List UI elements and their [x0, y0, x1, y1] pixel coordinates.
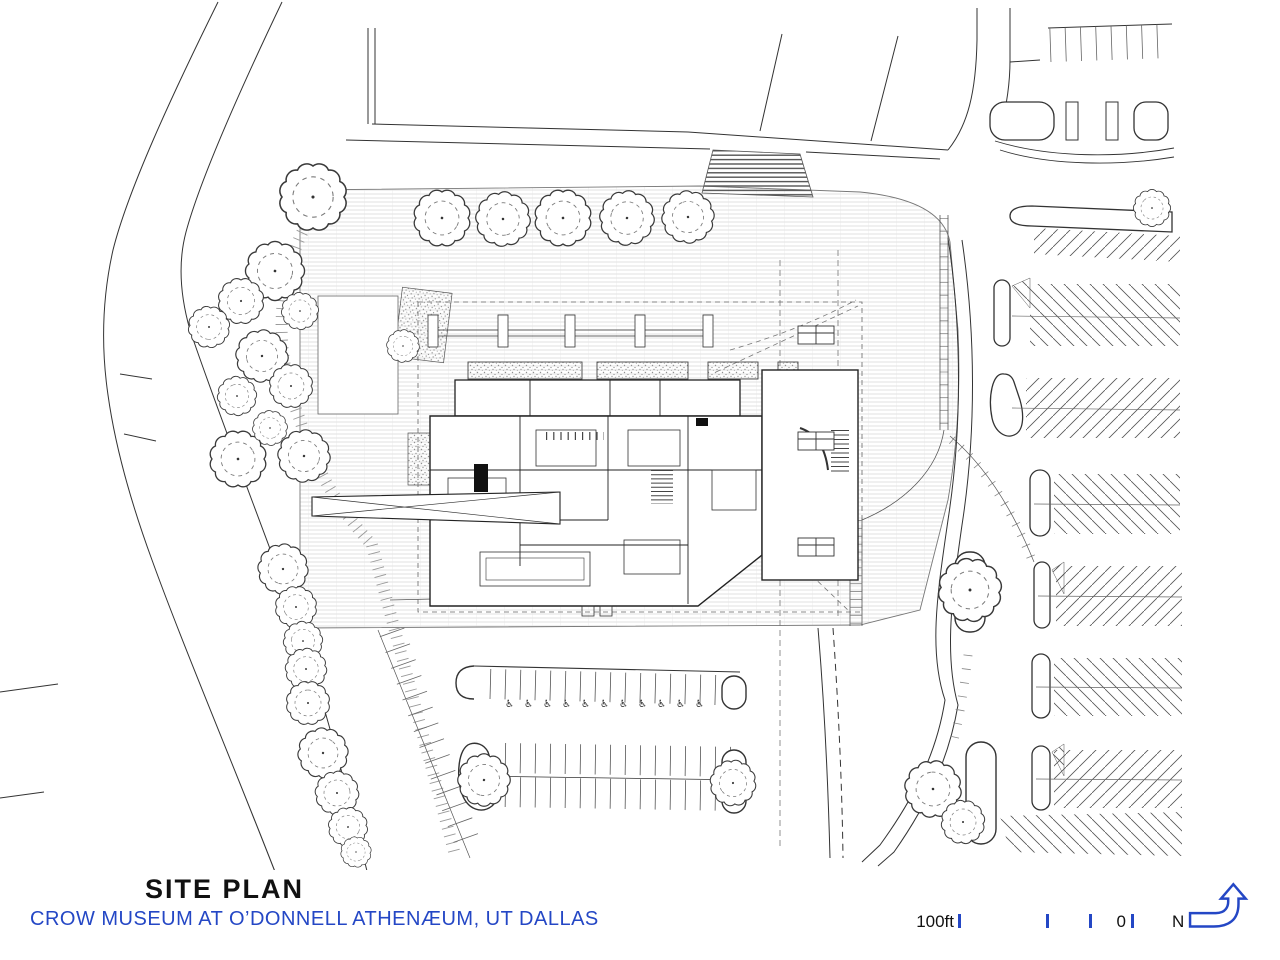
road-median-marks — [120, 374, 156, 441]
svg-text:♿: ♿ — [562, 699, 571, 710]
road-corner-ne — [948, 8, 977, 150]
lawn-panel — [318, 296, 398, 414]
svg-text:♿: ♿ — [695, 699, 704, 710]
north-label: N — [1172, 912, 1184, 932]
road-corner-lines-sw — [0, 684, 58, 798]
site-plan-drawing: ♿ ♿ ♿ ♿ ♿ ♿ ♿ ♿ ♿ ♿ ♿ — [0, 0, 1280, 870]
block-diagonals-top — [760, 34, 898, 141]
north-wing — [455, 380, 740, 416]
drawing-title: SITE PLAN — [145, 874, 304, 905]
scale-tick-0 — [1131, 914, 1134, 928]
road-top-north-edge — [372, 124, 948, 150]
crosswalk — [702, 150, 813, 197]
svg-text:♿: ♿ — [638, 699, 647, 710]
drawing-subtitle: CROW MUSEUM AT O’DONNELL ATHENÆUM, UT DA… — [30, 908, 599, 931]
scale-label-100ft: 100ft — [902, 912, 954, 932]
accessible-stall-icons: ♿ ♿ ♿ ♿ ♿ ♿ ♿ ♿ ♿ ♿ ♿ — [505, 699, 704, 710]
core — [696, 418, 708, 426]
svg-text:♿: ♿ — [600, 699, 609, 710]
drive-edge-south-dashed — [833, 628, 843, 858]
wall-band — [708, 362, 758, 379]
svg-text:♿: ♿ — [676, 699, 685, 710]
scale-tick-25 — [1089, 914, 1092, 928]
drive-edge-south — [818, 628, 830, 858]
scale-tick-50 — [1046, 914, 1049, 928]
svg-text:♿: ♿ — [543, 699, 552, 710]
scale-label-0: 0 — [1106, 912, 1126, 932]
scale-tick-100 — [958, 914, 961, 928]
svg-text:♿: ♿ — [505, 699, 514, 710]
svg-text:♿: ♿ — [657, 699, 666, 710]
svg-text:♿: ♿ — [524, 699, 533, 710]
north-arrow-icon — [1188, 881, 1256, 939]
parking-east — [990, 24, 1182, 856]
core — [474, 464, 488, 492]
svg-text:♿: ♿ — [581, 699, 590, 710]
angle-parking-sw — [392, 632, 470, 850]
svg-text:♿: ♿ — [619, 699, 628, 710]
drawing-sheet: ♿ ♿ ♿ ♿ ♿ ♿ ♿ ♿ ♿ ♿ ♿ — [0, 0, 1280, 960]
block-edge-vertical — [368, 28, 375, 124]
wall-band — [597, 362, 688, 379]
wall-band — [468, 362, 582, 379]
